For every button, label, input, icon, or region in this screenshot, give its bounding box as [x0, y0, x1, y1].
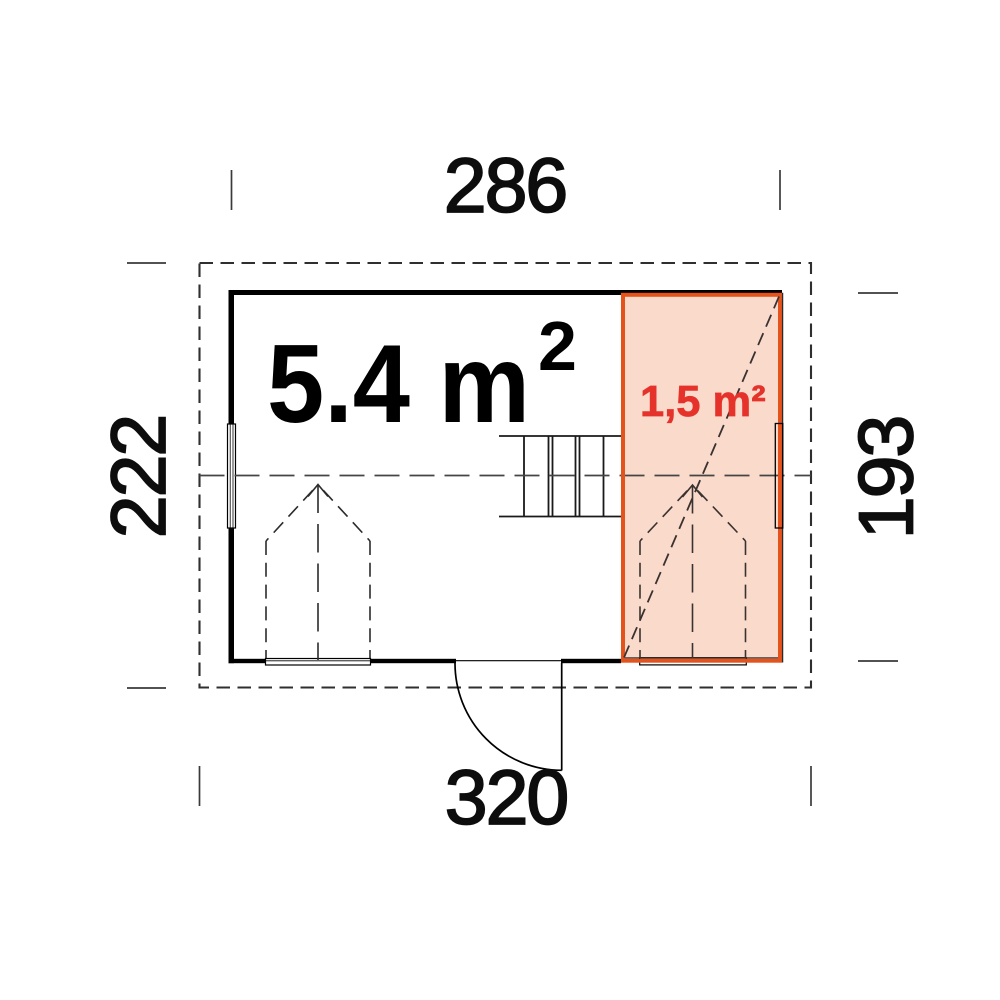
svg-text:5.4 m: 5.4 m — [267, 322, 530, 446]
svg-text:1,5 m²: 1,5 m² — [640, 378, 766, 426]
svg-text:320: 320 — [445, 755, 567, 841]
svg-text:286: 286 — [444, 143, 566, 229]
svg-text:193: 193 — [844, 417, 930, 539]
svg-text:222: 222 — [96, 416, 182, 538]
svg-text:2: 2 — [538, 307, 577, 385]
